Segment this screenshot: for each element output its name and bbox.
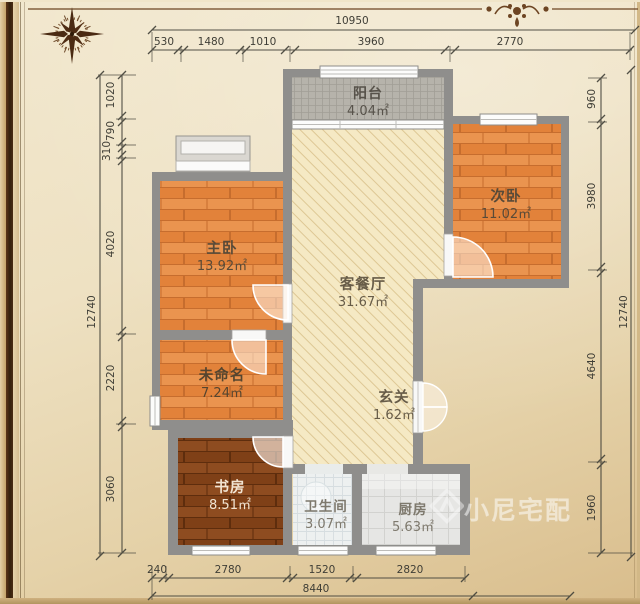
dim-top-seg-1: 530 (154, 36, 174, 48)
kitchen-door (367, 464, 408, 474)
dim-right-seg-3: 4640 (586, 353, 598, 380)
kitchen-counter (362, 474, 460, 489)
floor-plan-page: 10950 530 1480 1010 3960 2770 12740 1020… (0, 0, 640, 604)
ornament-divider-icon (28, 4, 638, 27)
dim-right-total: 12740 (618, 295, 630, 328)
room-area: 1.62㎡ (373, 408, 415, 424)
entry-double-door (413, 381, 447, 433)
watermark-logo-icon (428, 489, 464, 529)
room-name: 书房 (214, 480, 245, 496)
room-name: 卫生间 (304, 499, 348, 515)
dim-top-seg-4: 3960 (358, 36, 385, 48)
room-name: 厨房 (398, 502, 427, 518)
dim-left-seg-4: 4020 (105, 231, 117, 258)
room-name: 次卧 (491, 189, 522, 205)
dim-left-total: 12740 (86, 295, 98, 328)
dim-bottom-seg-2: 2780 (215, 564, 242, 576)
room-label-unnamed[interactable]: 未命名 7.24㎡ (199, 368, 246, 402)
room-name: 玄关 (378, 390, 409, 406)
dim-bottom-seg-3: 1520 (309, 564, 336, 576)
dim-left-seg-3: 310 (101, 141, 113, 161)
second-bedroom-window (480, 114, 537, 125)
room-area: 4.04㎡ (347, 104, 389, 120)
bathroom-door (305, 464, 343, 474)
dim-top-seg-3: 1010 (250, 36, 277, 48)
dim-top-total: 10950 (335, 15, 368, 27)
study-window (192, 546, 250, 555)
room-label-bathroom[interactable]: 卫生间 3.07㎡ (304, 499, 348, 533)
room-area: 3.07㎡ (305, 517, 347, 533)
bathroom-window (298, 546, 348, 555)
dim-bottom-seg-1: 240 (147, 564, 167, 576)
dim-bottom-seg-4: 2820 (397, 564, 424, 576)
unnamed-room-window (150, 396, 160, 426)
dim-left-seg-6: 3060 (105, 476, 117, 503)
balcony-window (320, 66, 418, 78)
balcony-sliding-window (292, 120, 444, 129)
dim-right-seg-4: 1960 (586, 495, 598, 522)
room-area: 11.02㎡ (481, 207, 531, 223)
room-area: 7.24㎡ (201, 386, 243, 402)
dim-left-seg-2: 790 (105, 121, 117, 141)
room-name: 阳台 (353, 86, 383, 102)
compass-icon (40, 7, 104, 64)
room-area: 13.92㎡ (197, 259, 247, 275)
room-area: 8.51㎡ (209, 498, 251, 514)
dim-left-seg-1: 1020 (105, 82, 117, 109)
dim-bottom-total: 8440 (303, 583, 330, 595)
room-label-master-bedroom[interactable]: 主卧 13.92㎡ (197, 241, 247, 275)
watermark: 小尼宅配 (428, 489, 572, 529)
master-bedroom-bay-window (176, 136, 250, 172)
dim-right-seg-1: 960 (586, 89, 598, 109)
room-name: 客餐厅 (340, 277, 387, 293)
room-area: 31.67㎡ (338, 295, 388, 311)
room-name: 主卧 (207, 241, 238, 257)
watermark-text: 小尼宅配 (464, 491, 572, 527)
room-label-living-dining[interactable]: 客餐厅 31.67㎡ (338, 277, 388, 311)
room-label-entry[interactable]: 玄关 1.62㎡ (373, 390, 415, 424)
dim-top-seg-2: 1480 (198, 36, 225, 48)
dim-right-seg-2: 3980 (586, 183, 598, 210)
dim-top-seg-5: 2770 (497, 36, 524, 48)
room-label-balcony[interactable]: 阳台 4.04㎡ (347, 86, 389, 120)
room-name: 未命名 (199, 368, 246, 384)
kitchen-window (376, 546, 436, 555)
dim-left-seg-5: 2220 (105, 365, 117, 392)
room-label-second-bedroom[interactable]: 次卧 11.02㎡ (481, 189, 531, 223)
room-label-study[interactable]: 书房 8.51㎡ (209, 480, 251, 514)
